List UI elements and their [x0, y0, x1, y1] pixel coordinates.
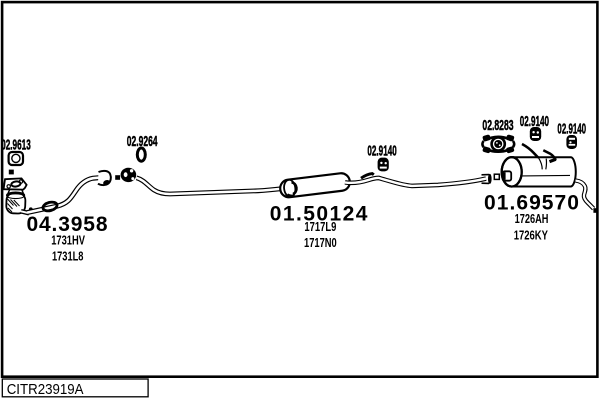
svg-text:01.69570: 01.69570 [484, 192, 580, 215]
svg-text:1717L9: 1717L9 [304, 221, 336, 235]
svg-text:1726KY: 1726KY [514, 229, 549, 243]
svg-text:02.9140: 02.9140 [367, 142, 397, 159]
svg-text:02.9613: 02.9613 [1, 136, 31, 153]
svg-text:04.3958: 04.3958 [27, 213, 109, 236]
svg-text:1717N0: 1717N0 [304, 236, 337, 250]
svg-text:1731HV: 1731HV [51, 234, 85, 248]
svg-text:1726AH: 1726AH [515, 212, 549, 226]
svg-text:02.8283: 02.8283 [482, 117, 513, 134]
svg-text:02.9140: 02.9140 [557, 121, 586, 137]
svg-text:1731L8: 1731L8 [52, 250, 83, 264]
svg-text:CITR23919A: CITR23919A [7, 381, 85, 397]
